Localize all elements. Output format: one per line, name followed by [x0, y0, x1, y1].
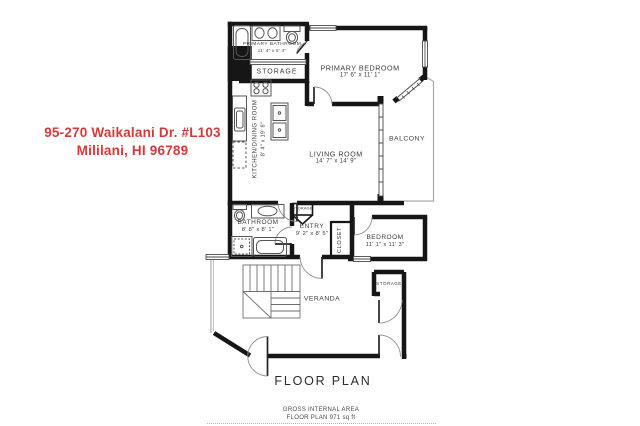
primary-vanity-sinks-icon [252, 26, 280, 41]
address-line1: 95-270 Waikalani Dr. #L103 [30, 124, 235, 142]
room-label-storage-upper: STORAGE [256, 67, 297, 76]
address-line2: Mililani, HI 96789 [30, 142, 235, 160]
room-label-kitchen-dining: KITCHEN/DINING ROOM 8' 4" x 19' 8" [253, 100, 268, 179]
room-label-veranda: VERANDA [304, 296, 340, 305]
veranda-outline [211, 260, 214, 333]
kitchen-island-icon [271, 103, 288, 140]
room-label-closet: CLOSET [337, 227, 345, 253]
room-label-living-room: LIVING ROOM 14' 7" x 14' 9" [309, 149, 362, 166]
dotted-cut-line [207, 423, 436, 424]
footer-area-note: GROSS INTERNAL AREA FLOOR PLAN 971 sq ft [241, 406, 401, 422]
stairs-icon [243, 265, 300, 318]
page-title: FLOOR PLAN [243, 374, 403, 388]
bathroom-vanity-icon [252, 205, 285, 219]
room-label-entry: ENTRY 9' 2" x 8' 5" [296, 223, 328, 239]
address: 95-270 Waikalani Dr. #L103 Mililani, HI … [30, 124, 235, 160]
floor-plan-page: PRIMARY BATHROOM 11' 4" x 5' 4" STORAGE … [0, 0, 640, 426]
shower-icon [232, 237, 253, 257]
room-label-balcony: BALCONY [389, 136, 425, 145]
room-label-bathroom: BATHROOM 8' 8" x 8' 1" [237, 219, 278, 235]
room-label-primary-bathroom: PRIMARY BATHROOM 11' 4" x 5' 4" [243, 42, 301, 54]
room-label-storage-entry: STORAGE [293, 207, 313, 212]
bathtub-icon [254, 238, 287, 257]
footer-line2: FLOOR PLAN 971 sq ft [241, 414, 401, 422]
room-label-bedroom: BEDROOM 11' 1" x 11' 3" [366, 234, 405, 250]
primary-toilet-icon [284, 26, 300, 44]
footer-line1: GROSS INTERNAL AREA [241, 406, 401, 414]
room-label-primary-bedroom: PRIMARY BEDROOM 17' 6" x 11' 1" [320, 63, 399, 80]
room-label-storage-bedroom: STORAGE [376, 281, 401, 287]
